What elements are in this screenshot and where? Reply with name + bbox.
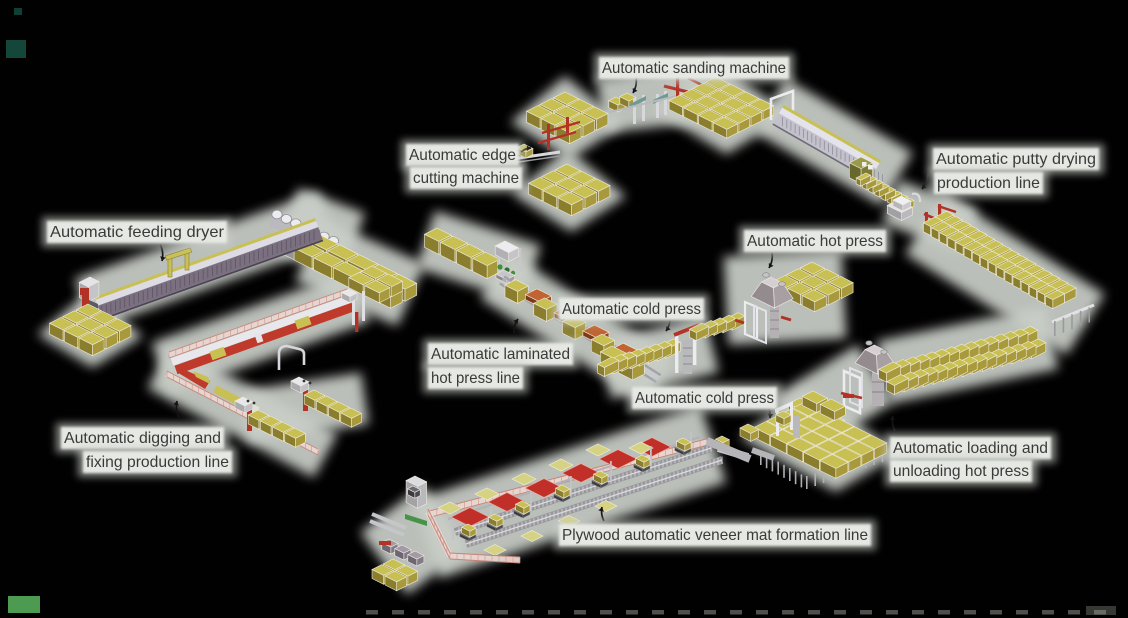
svg-text:Automatic cold press: Automatic cold press [635, 390, 774, 407]
svg-text:hot press line: hot press line [431, 370, 520, 387]
svg-text:Automatic digging and: Automatic digging and [64, 430, 221, 447]
svg-text:Automatic cold press: Automatic cold press [562, 301, 701, 318]
svg-text:Plywood automatic veneer mat f: Plywood automatic veneer mat formation l… [562, 527, 868, 544]
svg-text:Automatic loading and: Automatic loading and [893, 440, 1048, 457]
svg-text:Automatic hot press: Automatic hot press [747, 233, 883, 250]
svg-text:Automatic edge: Automatic edge [409, 147, 516, 164]
svg-text:unloading hot press: unloading hot press [893, 463, 1029, 480]
svg-text:fixing production line: fixing production line [86, 454, 229, 471]
svg-text:Automatic sanding machine: Automatic sanding machine [602, 60, 786, 77]
svg-text:Automatic laminated: Automatic laminated [431, 346, 570, 363]
svg-text:production line: production line [937, 175, 1040, 192]
svg-text:Automatic feeding dryer: Automatic feeding dryer [50, 224, 224, 241]
svg-text:Automatic putty drying: Automatic putty drying [936, 151, 1096, 168]
svg-text:cutting machine: cutting machine [413, 170, 519, 187]
